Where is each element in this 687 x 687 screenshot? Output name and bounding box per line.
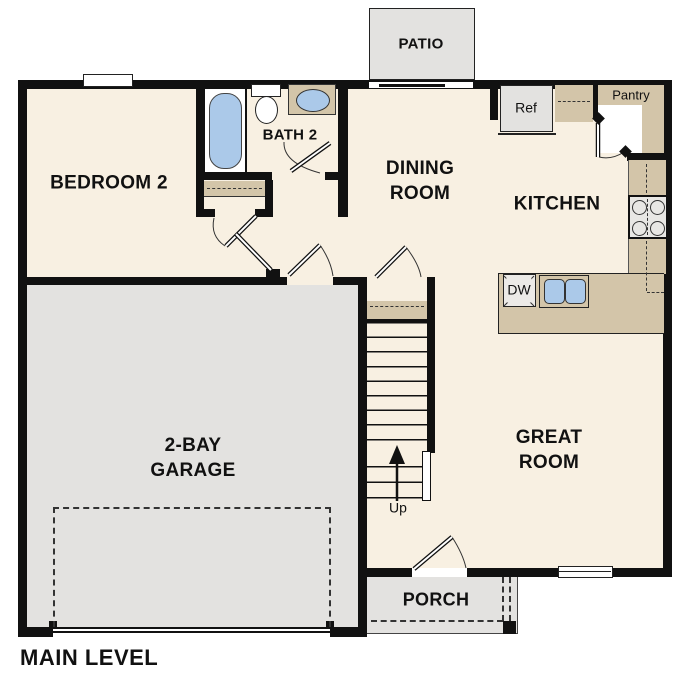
- cabinet-by-ref-dashed: [558, 101, 590, 102]
- stair-closet-rod-dashed: [370, 306, 424, 307]
- burner-2: [650, 200, 665, 215]
- stair-treads-lower: [367, 452, 425, 501]
- counter-dashed-1: [646, 164, 647, 193]
- range: [628, 195, 666, 239]
- bedroom-closet-shelf: [204, 181, 265, 197]
- wall-hall-garage-a: [18, 277, 287, 285]
- patio-slider-track: [369, 80, 473, 82]
- stair-handrail: [422, 451, 431, 501]
- stair-closet-shelf: [367, 301, 427, 320]
- main-level-title: MAIN LEVEL: [20, 645, 158, 671]
- wall-kitchen-dining-stub: [490, 80, 498, 120]
- greatroom-window: [558, 566, 613, 578]
- bathtub-alcove: [203, 87, 247, 174]
- garage-door-path-dashed: [53, 507, 331, 627]
- pantry-interior: [598, 105, 642, 153]
- wall-closet-right-foot: [255, 209, 273, 217]
- dw-label: DW: [506, 278, 531, 303]
- porch-post: [503, 621, 516, 634]
- refrigerator-door-line: [498, 133, 556, 135]
- bedroom-closet-rod-dashed: [207, 188, 262, 189]
- garage-label: 2-BAY GARAGE: [128, 433, 258, 483]
- floor-plan: BEDROOM 2 BATH 2 DINING ROOM KITCHEN GRE…: [0, 0, 687, 687]
- kitchen-sink: [539, 275, 589, 308]
- greatroom-window-mullion: [559, 571, 611, 572]
- wall-stair-right: [427, 277, 435, 453]
- bathtub: [209, 93, 242, 169]
- bath-sink: [296, 89, 330, 112]
- kitchen-label: KITCHEN: [514, 192, 601, 217]
- garage-door: [53, 627, 330, 637]
- porch-roofline-dashed-v1: [502, 577, 504, 621]
- range-center-dashed: [647, 199, 648, 235]
- toilet-bowl: [255, 96, 278, 124]
- wall-right: [663, 80, 672, 577]
- garage-door-line1: [53, 627, 330, 629]
- wall-left: [18, 80, 27, 637]
- wall-closet-left-foot: [196, 209, 215, 217]
- sink-basin-right: [565, 279, 586, 304]
- patio-label: PATIO: [398, 32, 443, 57]
- stair-treads-upper: [367, 322, 427, 453]
- patio-slider-panel: [379, 84, 445, 87]
- porch-label: PORCH: [403, 588, 470, 613]
- counter-dashed-2: [646, 241, 647, 291]
- wall-hall-garage-b: [333, 277, 358, 285]
- front-door-opening: [412, 568, 467, 577]
- burner-3: [632, 221, 647, 236]
- burner-1: [632, 200, 647, 215]
- bedroom2-window: [83, 74, 133, 87]
- burner-4: [650, 221, 665, 236]
- pantry-label: Pantry: [612, 83, 650, 108]
- ref-label: Ref: [515, 96, 537, 121]
- sink-basin-left: [544, 279, 565, 304]
- counter-dashed-corner: [647, 292, 664, 293]
- bedroom2-label: BEDROOM 2: [50, 171, 168, 196]
- pantry-right-column: [642, 105, 664, 153]
- great-room-label: GREAT ROOM: [499, 425, 599, 475]
- wall-dining-left: [338, 80, 348, 217]
- bath2-label: BATH 2: [263, 123, 318, 148]
- cabinet-by-ref: [555, 85, 593, 122]
- patio-slider-opening: [369, 80, 473, 88]
- up-label: Up: [389, 496, 407, 521]
- garage-door-line2: [53, 631, 330, 633]
- porch-roofline-dashed: [371, 620, 503, 622]
- wall-bedroom-door-post: [266, 269, 280, 277]
- wall-stair-left: [358, 277, 367, 637]
- dining-room-label: DINING ROOM: [372, 156, 468, 206]
- porch-roofline-dashed-v2: [509, 577, 511, 621]
- bath-vanity-counter: [288, 84, 336, 115]
